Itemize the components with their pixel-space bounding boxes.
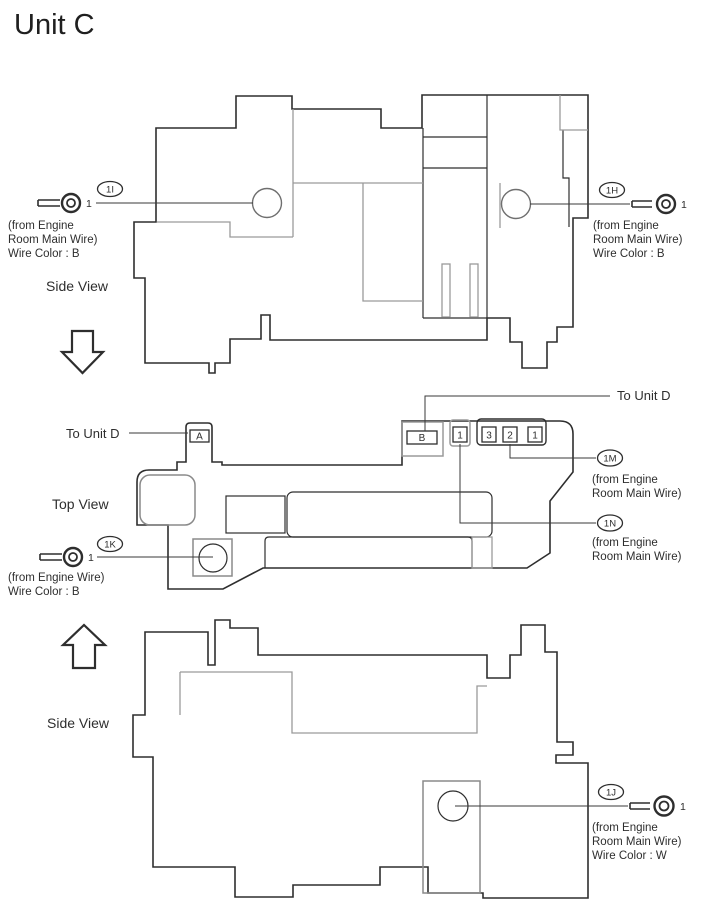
wire-lines [630,803,650,809]
to-unit-d-right-label: To Unit D [617,388,670,403]
note-line: (from Engine [592,474,658,486]
connector-2-label: 2 [507,431,513,442]
leader-line [460,444,596,523]
note-line: (from Engine [593,220,659,232]
center-block-small [226,496,285,533]
up-arrow-icon [63,625,105,668]
note-line: (from Engine [592,822,658,834]
ring-inner [69,553,77,561]
ring-terminal-icon [632,195,675,213]
callout-1n: 1N (from Engine Room Main Wire) [460,444,682,563]
internal-gray-line [363,183,423,301]
tag-label: 1I [106,185,114,196]
ring-inner [662,200,670,208]
unit-outline-top-side [134,95,588,373]
note-line: Room Main Wire) [592,488,682,500]
ring-terminal-icon [40,548,82,566]
connector-a-label: A [196,432,203,443]
top-view-unit: A B 1 3 2 1 [137,419,573,589]
wire-lines [632,201,652,207]
down-arrow-icon [62,331,103,373]
note-line: Room Main Wire) [593,234,683,246]
note-line: (from Engine [8,220,74,232]
page-title: Unit C [14,9,95,41]
note-line: Wire Color : B [8,586,80,598]
internal-gray-line [157,222,293,237]
connector-3-label: 3 [486,431,492,442]
inner-rounded-block [140,475,195,525]
slot [442,264,450,317]
callout-1m: 1M (from Engine Room Main Wire) [510,444,682,500]
ground-plate-1j [423,781,480,893]
ring-terminal-icon [630,797,674,816]
internal-gray-line [560,95,588,130]
ring-inner [660,802,669,811]
to-unit-d-right: To Unit D [425,388,670,431]
bottom-side-view-label: Side View [47,715,110,731]
ground-hole-1i [253,189,282,218]
diagram-page: Unit C 1I 1 (from Engine Room M [0,0,712,912]
internal-gray-line [180,672,487,733]
top-side-view-unit [134,95,588,373]
note-line: Room Main Wire) [8,234,98,246]
tag-label: 1N [604,519,616,530]
callout-1j: 1J 1 (from Engine Room Main Wire) Wire C… [455,785,686,863]
bottom-side-view-unit [133,620,588,898]
connector-1b-label: 1 [532,431,538,442]
tag-label: 1J [606,788,616,799]
note-line: Wire Color : B [8,248,80,260]
callout-1i: 1I 1 (from Engine Room Main Wire) Wire C… [8,182,253,261]
note-line: Wire Color : W [592,850,667,862]
terminal-number: 1 [86,198,92,210]
internal-line [563,130,569,227]
leader-line [510,444,596,458]
connector-1-label: 1 [457,431,463,442]
connector-b-label: B [419,433,426,444]
note-line: Room Main Wire) [592,551,682,563]
center-block-right [472,537,492,568]
terminal-number: 1 [680,801,686,813]
unit-c-diagram: Unit C 1I 1 (from Engine Room M [0,0,712,912]
center-block-large [287,492,492,537]
callout-1h: 1H 1 (from Engine Room Main Wire) Wire C… [530,183,687,261]
wire-lines [40,554,62,560]
to-unit-d-left-label: To Unit D [66,426,119,441]
ground-hole-1k [199,544,227,572]
to-unit-d-left: To Unit D [66,426,188,441]
unit-outline-top-view [137,421,573,589]
top-side-view-label: Side View [46,278,109,294]
terminal-number: 1 [88,552,94,564]
slot [470,264,478,317]
unit-outline-bottom-side [133,620,588,898]
note-line: Wire Color : B [593,248,665,260]
tag-label: 1H [606,186,618,197]
note-line: Room Main Wire) [592,836,682,848]
ground-hole-1h [502,190,531,219]
tag-label: 1M [603,454,616,465]
top-view-label: Top View [52,496,109,512]
ring-inner [67,199,75,207]
ring-terminal-icon [38,194,80,212]
wire-lines [38,200,60,206]
terminal-number: 1 [681,199,687,211]
note-line: (from Engine [592,537,658,549]
tag-label: 1K [104,540,116,551]
leader-line [425,396,610,431]
note-line: (from Engine Wire) [8,572,105,584]
center-block-lower [265,537,472,568]
